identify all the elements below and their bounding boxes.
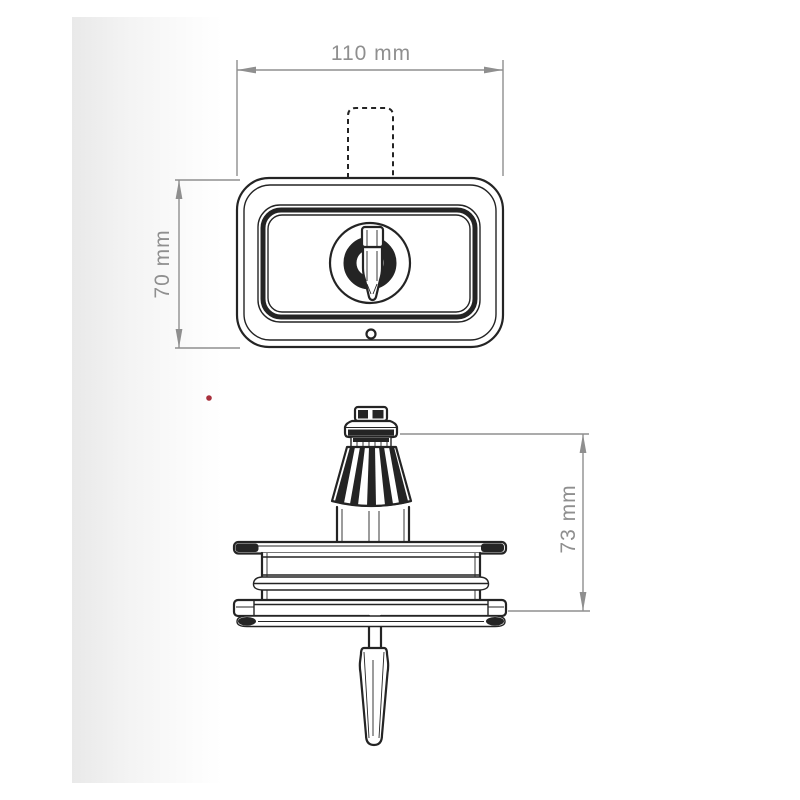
dish-washer <box>237 616 505 627</box>
dim-depth-label: 73 mm <box>557 449 581 589</box>
cylinder-body <box>337 505 409 543</box>
side-view <box>234 407 506 745</box>
knurled-grip <box>332 447 411 507</box>
mounting-flange-top <box>234 542 506 554</box>
screw-hole <box>367 330 376 339</box>
knob-collar <box>351 437 391 447</box>
knob-flange <box>345 421 397 437</box>
technical-drawing <box>0 0 800 800</box>
dim-width <box>237 60 503 176</box>
dim-height <box>175 180 240 348</box>
dim-height-label: 70 mm <box>151 194 175 334</box>
key-dashed-outline <box>348 108 393 178</box>
seal-band <box>253 577 488 590</box>
dim-width-label: 110 mm <box>301 42 441 66</box>
knob-cap <box>355 407 387 421</box>
red-marker-dot <box>206 395 212 401</box>
handle-lever <box>360 648 388 745</box>
front-view <box>237 108 503 347</box>
